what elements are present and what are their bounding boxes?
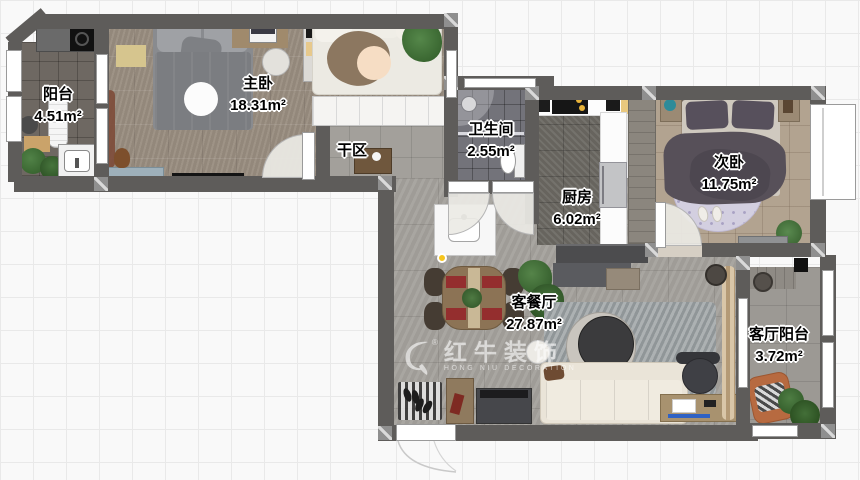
room-area: 6.02m² [553, 209, 601, 231]
wall-cap [811, 243, 825, 257]
room-area: 18.31m² [230, 95, 286, 117]
dining-centerpiece-plant [462, 288, 482, 308]
wall-cap [811, 86, 825, 100]
dry-area-cup [372, 152, 381, 161]
room-name: 干区 [337, 140, 367, 162]
office-chair [682, 358, 718, 394]
balcony2-stool [753, 272, 773, 292]
wall-living-left [378, 176, 394, 441]
nightstand-lamp [664, 99, 676, 111]
balcony-sliding-door [96, 108, 108, 164]
bedroom2-wardrobe [628, 92, 656, 244]
wall-left-strip-bottom [14, 176, 396, 192]
kitchen-island [556, 244, 648, 263]
room-name: 次卧 [714, 152, 744, 174]
wall-cap [94, 177, 108, 191]
balcony-sink-faucet [75, 158, 79, 168]
bedroom2-door-panel [655, 202, 666, 248]
wall-cap [642, 86, 656, 100]
wall-cap [378, 176, 392, 190]
floor-plan-canvas: 阳台 4.51m² 主卧 18.31m² 干区 卫生间 2.55m² 厨房 6.… [0, 0, 860, 480]
room-area: 11.75m² [701, 174, 756, 196]
entry-door-swing [396, 440, 458, 474]
master-bed-round-pillow [184, 82, 218, 116]
room-area: 3.72m² [755, 346, 803, 368]
room-name: 主卧 [243, 73, 273, 95]
bedroom2-bay-window [810, 104, 856, 200]
desk-phone [704, 400, 716, 407]
room-label-living-dining: 客餐厅 27.87m² [506, 292, 562, 336]
stove-burner-2 [579, 105, 585, 111]
master-rug [116, 45, 146, 67]
room-label-bathroom: 卫生间 2.55m² [467, 119, 515, 163]
balcony2-door-window [738, 298, 748, 388]
room-name: 客餐厅 [511, 292, 556, 314]
desk-chair [262, 48, 290, 76]
placemat-4 [482, 308, 502, 320]
bathroom-door-panel [492, 181, 534, 193]
room-label-living-balcony: 客厅阳台 3.72m² [749, 324, 809, 368]
sideboard-wood-shelf [606, 268, 640, 290]
wall-cap [378, 426, 392, 440]
shower-head [461, 96, 477, 112]
room-area: 2.55m² [467, 141, 515, 163]
daybed-round-pillow [357, 46, 391, 80]
window [6, 50, 22, 92]
fridge-handle [602, 166, 604, 204]
window [6, 96, 22, 142]
watermark-subtitle: HONG NIU DECORATION [444, 364, 577, 373]
wall-cap [525, 86, 539, 100]
tv-panel [480, 390, 528, 398]
wall-cap [736, 256, 750, 270]
bathroom-window [464, 78, 536, 88]
room-label-kitchen: 厨房 6.02m² [553, 187, 601, 231]
bedroom2-pillow-right [731, 100, 774, 130]
watermark-brand: 红牛装饰 [444, 341, 577, 364]
placemat-1 [446, 276, 466, 288]
room-label-dry-area: 干区 [337, 140, 367, 162]
placemat-3 [482, 276, 502, 288]
room-name: 阳台 [43, 84, 73, 106]
lounge-closet [312, 96, 448, 126]
room-name: 卫生间 [468, 119, 513, 141]
room-name: 客厅阳台 [749, 324, 809, 346]
room-name: 厨房 [562, 187, 592, 209]
room-label-balcony: 阳台 4.51m² [34, 84, 82, 128]
ceiling-light-marker [437, 253, 447, 263]
room-label-master-bedroom: 主卧 18.31m² [230, 73, 286, 117]
desk-paper [672, 399, 696, 413]
bay-window-inner-line [822, 108, 824, 196]
curtain [722, 266, 735, 420]
wall-cap [821, 424, 835, 438]
bull-logo-icon [398, 338, 432, 376]
desk-keyboard [668, 414, 710, 418]
balcony2-corner-block [794, 258, 808, 272]
washing-machine-door [75, 32, 89, 46]
window [446, 50, 457, 98]
balcony-sliding-door [96, 54, 108, 104]
placemat-2 [446, 308, 466, 320]
wall-north-mid [535, 86, 825, 100]
round-side-table [705, 264, 727, 286]
room-area: 4.51m² [34, 106, 82, 128]
bathroom-door-panel [448, 181, 489, 193]
nightstand-frame [783, 99, 793, 113]
wall-master-dry-divider [316, 126, 330, 180]
room-area: 27.87m² [506, 314, 562, 336]
bedroom2-pillow-left [685, 100, 728, 130]
window [822, 342, 834, 408]
wall-cap [444, 13, 458, 27]
entry-door-panel [396, 424, 456, 441]
master-door-panel [302, 132, 315, 180]
window [752, 425, 798, 437]
watermark: ® 红牛装饰 HONG NIU DECORATION [398, 338, 576, 376]
room-label-second-bedroom: 次卧 11.75m² [701, 152, 756, 196]
wall-lounge-right [444, 13, 458, 197]
master-plant-pot [114, 148, 130, 168]
window [822, 270, 834, 336]
registered-mark: ® [432, 338, 438, 347]
